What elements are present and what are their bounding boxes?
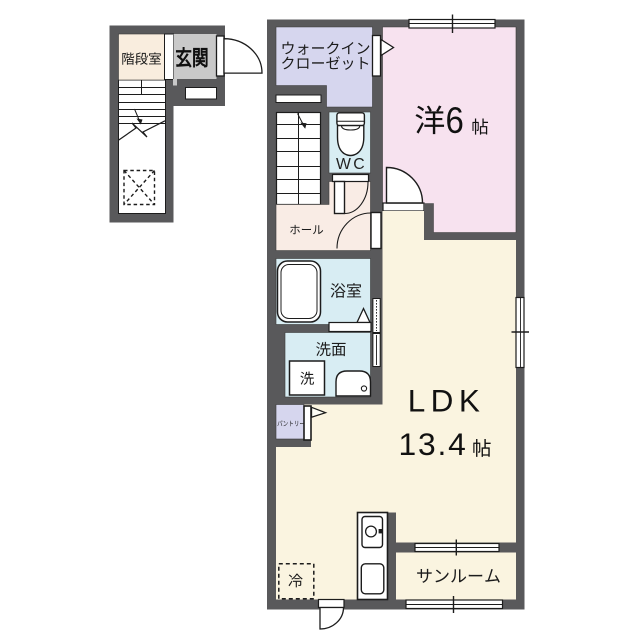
svg-text:LDK: LDK (408, 383, 485, 419)
svg-text:6: 6 (446, 101, 464, 142)
svg-text:WC: WC (336, 156, 367, 173)
svg-text:13.4: 13.4 (399, 426, 468, 462)
